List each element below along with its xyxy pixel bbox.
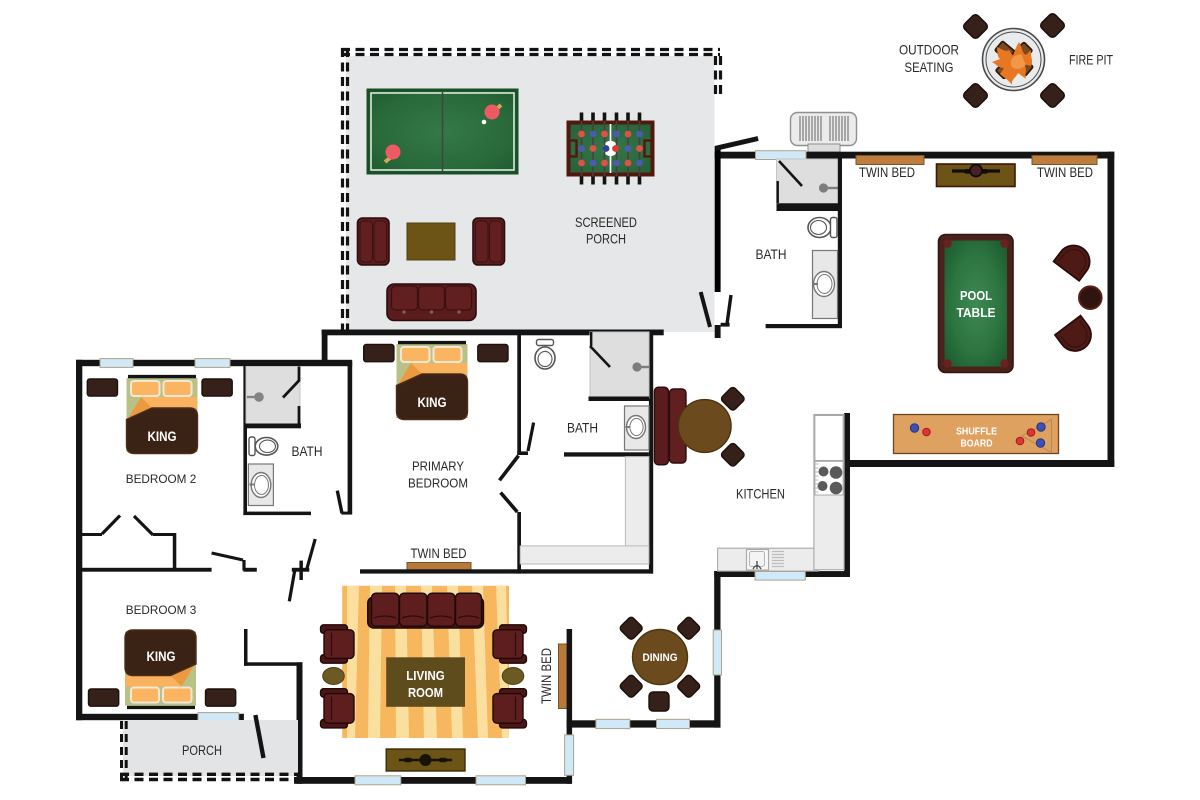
- svg-text:POOL: POOL: [960, 288, 992, 303]
- svg-text:BATH: BATH: [292, 444, 323, 459]
- svg-text:SCREENED: SCREENED: [575, 215, 637, 230]
- svg-text:BATH: BATH: [756, 247, 787, 262]
- svg-text:TWIN BED: TWIN BED: [411, 546, 467, 561]
- svg-text:FIRE PIT: FIRE PIT: [1069, 53, 1113, 68]
- svg-text:TWIN BED: TWIN BED: [539, 648, 554, 704]
- svg-text:DINING: DINING: [643, 652, 678, 664]
- svg-text:BEDROOM: BEDROOM: [408, 476, 468, 491]
- svg-text:PORCH: PORCH: [182, 743, 222, 758]
- svg-text:SHUFFLE: SHUFFLE: [956, 427, 997, 438]
- svg-text:TABLE: TABLE: [957, 305, 996, 320]
- svg-text:PRIMARY: PRIMARY: [412, 459, 464, 474]
- svg-text:LIVING: LIVING: [406, 668, 445, 683]
- svg-text:BEDROOM 3: BEDROOM 3: [126, 603, 197, 617]
- svg-text:BATH: BATH: [567, 421, 598, 436]
- svg-text:SEATING: SEATING: [905, 60, 954, 75]
- svg-text:KING: KING: [418, 395, 447, 410]
- svg-text:BEDROOM 2: BEDROOM 2: [126, 472, 197, 486]
- svg-text:ROOM: ROOM: [408, 685, 443, 700]
- svg-text:PORCH: PORCH: [586, 232, 626, 247]
- svg-text:KITCHEN: KITCHEN: [736, 487, 785, 502]
- svg-text:BOARD: BOARD: [961, 439, 993, 450]
- svg-text:KING: KING: [148, 429, 177, 444]
- svg-text:TWIN BED: TWIN BED: [1037, 165, 1093, 180]
- svg-text:TWIN BED: TWIN BED: [859, 165, 915, 180]
- svg-text:KING: KING: [147, 649, 176, 664]
- svg-text:OUTDOOR: OUTDOOR: [899, 43, 959, 58]
